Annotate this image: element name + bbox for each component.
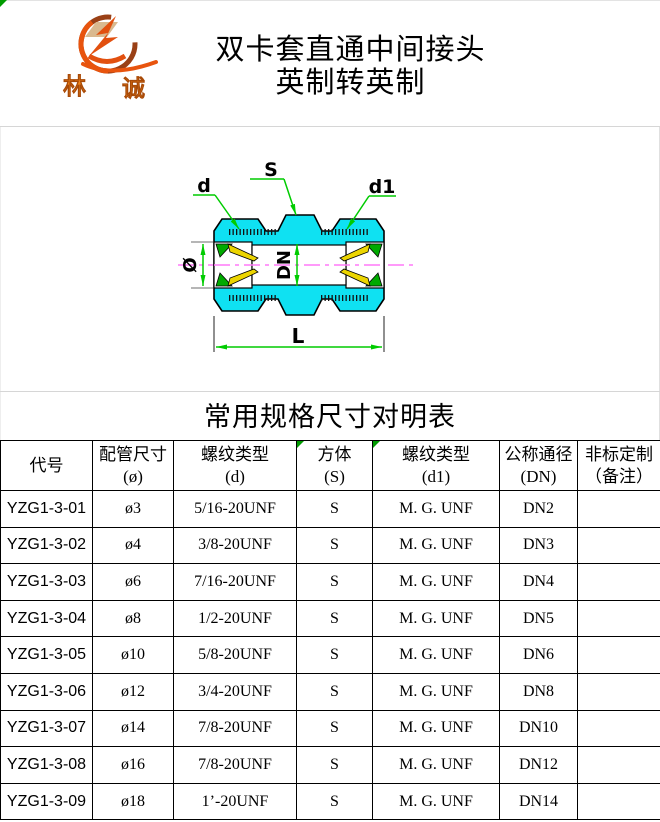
cell-code: YZG1-3-04 <box>1 600 93 637</box>
cell-hex-s: S <box>297 600 373 637</box>
fitting-cross-section-drawing: S d d1 Ø DN L <box>0 127 660 392</box>
cell-dn: DN14 <box>500 783 578 820</box>
cell-pipe-size: ø8 <box>93 600 174 637</box>
cell-thread-d1: M. G. UNF <box>373 673 500 710</box>
table-row: YZG1-3-02ø43/8-20UNFSM. G. UNFDN3 <box>1 527 660 564</box>
table-row: YZG1-3-05ø105/8-20UNFSM. G. UNFDN6 <box>1 637 660 674</box>
table-row: YZG1-3-03ø67/16-20UNFSM. G. UNFDN4 <box>1 564 660 601</box>
cell-dn: DN4 <box>500 564 578 601</box>
cell-thread-d: 5/8-20UNF <box>174 637 297 674</box>
header-hex-s: 方体(S) <box>297 441 373 491</box>
excel-comment-marker <box>297 441 304 448</box>
logo-graphic: 林 诚 <box>50 4 168 108</box>
cell-hex-s: S <box>297 673 373 710</box>
cell-pipe-size: ø14 <box>93 710 174 747</box>
header-custom: 非标定制（备注） <box>578 441 660 491</box>
cell-pipe-size: ø6 <box>93 564 174 601</box>
cell-thread-d1: M. G. UNF <box>373 600 500 637</box>
logo-char-right: 诚 <box>122 76 145 101</box>
company-logo: 林 诚 <box>50 4 168 108</box>
spec-table-body: YZG1-3-01ø35/16-20UNFSM. G. UNFDN2YZG1-3… <box>1 491 660 820</box>
document-title-line1: 双卡套直通中间接头 <box>158 34 543 67</box>
drawing-band: S d d1 Ø DN L <box>0 127 660 392</box>
document-title-line2: 英制转英制 <box>158 67 543 100</box>
cell-custom <box>578 637 660 674</box>
dim-label-s: S <box>264 159 278 181</box>
excel-comment-marker <box>0 0 7 7</box>
header-code: 代号 <box>1 441 93 491</box>
spec-table-header-row: 代号配管尺寸(ø)螺纹类型(d)方体(S)螺纹类型(d1)公称通径(DN)非标定… <box>1 441 660 491</box>
cell-thread-d1: M. G. UNF <box>373 710 500 747</box>
document-title: 双卡套直通中间接头 英制转英制 <box>158 34 543 100</box>
header-dn: 公称通径(DN) <box>500 441 578 491</box>
cell-dn: DN6 <box>500 637 578 674</box>
spec-table-title: 常用规格尺寸对明表 <box>0 392 660 440</box>
cell-hex-s: S <box>297 564 373 601</box>
cell-pipe-size: ø12 <box>93 673 174 710</box>
table-row: YZG1-3-09ø181’-20UNFSM. G. UNFDN14 <box>1 783 660 820</box>
cell-thread-d1: M. G. UNF <box>373 491 500 528</box>
cell-hex-s: S <box>297 710 373 747</box>
cell-dn: DN2 <box>500 491 578 528</box>
cell-custom <box>578 673 660 710</box>
header-thread-d1: 螺纹类型(d1) <box>373 441 500 491</box>
cell-thread-d: 7/16-20UNF <box>174 564 297 601</box>
cell-thread-d1: M. G. UNF <box>373 747 500 784</box>
dim-leader-s <box>284 179 296 215</box>
cell-custom <box>578 710 660 747</box>
cell-custom <box>578 747 660 784</box>
cell-code: YZG1-3-08 <box>1 747 93 784</box>
cell-thread-d: 7/8-20UNF <box>174 747 297 784</box>
cell-thread-d: 7/8-20UNF <box>174 710 297 747</box>
table-row: YZG1-3-01ø35/16-20UNFSM. G. UNFDN2 <box>1 491 660 528</box>
cell-thread-d1: M. G. UNF <box>373 783 500 820</box>
header-band: 林 诚 双卡套直通中间接头 英制转英制 <box>0 0 660 127</box>
cell-code: YZG1-3-03 <box>1 564 93 601</box>
cell-thread-d1: M. G. UNF <box>373 527 500 564</box>
cell-code: YZG1-3-02 <box>1 527 93 564</box>
cell-code: YZG1-3-09 <box>1 783 93 820</box>
logo-char-left: 林 <box>63 73 86 99</box>
cell-custom <box>578 600 660 637</box>
cell-thread-d: 1’-20UNF <box>174 783 297 820</box>
cell-pipe-size: ø18 <box>93 783 174 820</box>
dim-label-l: L <box>292 324 305 348</box>
cell-code: YZG1-3-05 <box>1 637 93 674</box>
cell-thread-d: 3/4-20UNF <box>174 673 297 710</box>
cell-custom <box>578 527 660 564</box>
cell-pipe-size: ø4 <box>93 527 174 564</box>
datasheet-page: { "header": { "logo": { "char_left": "林"… <box>0 0 660 822</box>
cell-dn: DN3 <box>500 527 578 564</box>
cell-thread-d: 5/16-20UNF <box>174 491 297 528</box>
dim-label-d: d <box>197 175 211 197</box>
table-row: YZG1-3-08ø167/8-20UNFSM. G. UNFDN12 <box>1 747 660 784</box>
dim-label-d1: d1 <box>369 176 396 198</box>
cell-dn: DN10 <box>500 710 578 747</box>
cell-pipe-size: ø16 <box>93 747 174 784</box>
cell-code: YZG1-3-07 <box>1 710 93 747</box>
cell-hex-s: S <box>297 747 373 784</box>
cell-hex-s: S <box>297 783 373 820</box>
cell-thread-d1: M. G. UNF <box>373 564 500 601</box>
cell-custom <box>578 564 660 601</box>
cell-custom <box>578 491 660 528</box>
cell-pipe-size: ø3 <box>93 491 174 528</box>
cell-thread-d: 3/8-20UNF <box>174 527 297 564</box>
logo-lightning-tail <box>89 56 125 62</box>
cell-dn: DN8 <box>500 673 578 710</box>
cell-thread-d1: M. G. UNF <box>373 637 500 674</box>
cell-dn: DN5 <box>500 600 578 637</box>
spec-table: 代号配管尺寸(ø)螺纹类型(d)方体(S)螺纹类型(d1)公称通径(DN)非标定… <box>0 440 660 820</box>
cell-hex-s: S <box>297 637 373 674</box>
header-pipe-size: 配管尺寸(ø) <box>93 441 174 491</box>
table-row: YZG1-3-06ø123/4-20UNFSM. G. UNFDN8 <box>1 673 660 710</box>
dim-label-dia: Ø <box>180 257 201 272</box>
header-thread-d: 螺纹类型(d) <box>174 441 297 491</box>
cell-custom <box>578 783 660 820</box>
cell-thread-d: 1/2-20UNF <box>174 600 297 637</box>
excel-comment-marker <box>373 441 380 448</box>
cell-pipe-size: ø10 <box>93 637 174 674</box>
cell-hex-s: S <box>297 491 373 528</box>
cell-code: YZG1-3-06 <box>1 673 93 710</box>
cell-hex-s: S <box>297 527 373 564</box>
table-row: YZG1-3-07ø147/8-20UNFSM. G. UNFDN10 <box>1 710 660 747</box>
table-row: YZG1-3-04ø81/2-20UNFSM. G. UNFDN5 <box>1 600 660 637</box>
dim-label-dn: DN <box>274 250 295 280</box>
cell-dn: DN12 <box>500 747 578 784</box>
cell-code: YZG1-3-01 <box>1 491 93 528</box>
